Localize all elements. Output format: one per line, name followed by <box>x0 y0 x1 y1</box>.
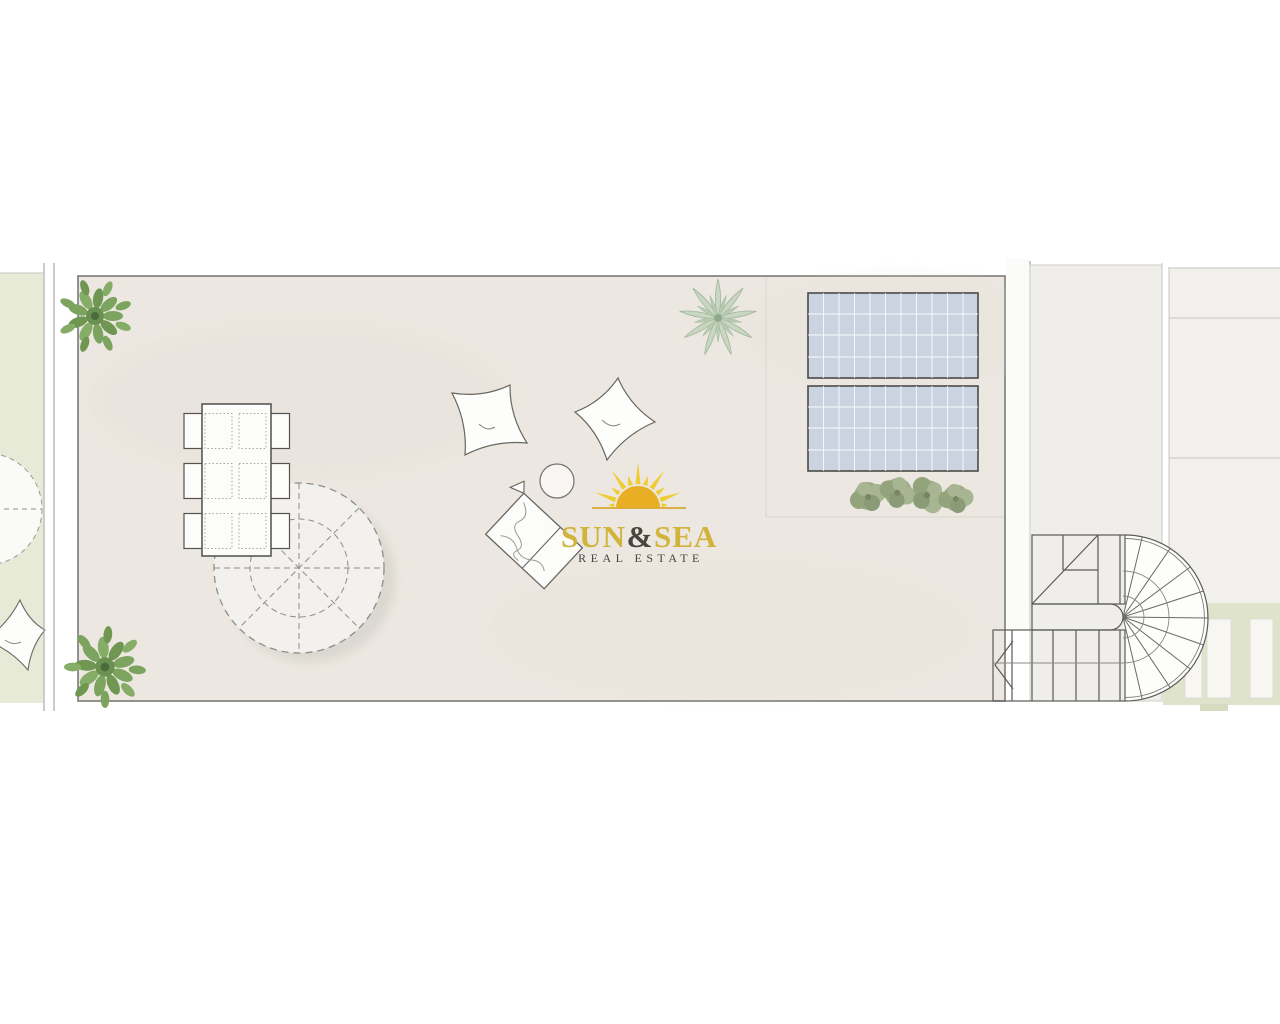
dining-table <box>202 404 271 556</box>
left-garden-strip <box>0 273 45 703</box>
logo-ampersand: & <box>627 519 654 554</box>
logo-word-sea: SEA <box>654 519 717 554</box>
logo-word-sun: SUN <box>561 519 626 554</box>
solar-panel-1 <box>808 293 978 378</box>
dining-set <box>184 404 290 556</box>
deck-plank <box>1207 619 1231 698</box>
deck-plank <box>1250 619 1273 698</box>
floor-plan-page: SUN & SEA REAL ESTATE <box>0 0 1280 1024</box>
right-wall-band <box>1006 259 1030 630</box>
left-boundary-wall <box>44 263 54 711</box>
side-table-icon <box>540 464 574 498</box>
right-neighbor-floor <box>1162 263 1280 603</box>
logo-subtitle: REAL ESTATE <box>578 551 704 565</box>
floor-plan-drawing: SUN & SEA REAL ESTATE <box>0 0 1280 1024</box>
solar-panel-2 <box>808 386 978 471</box>
